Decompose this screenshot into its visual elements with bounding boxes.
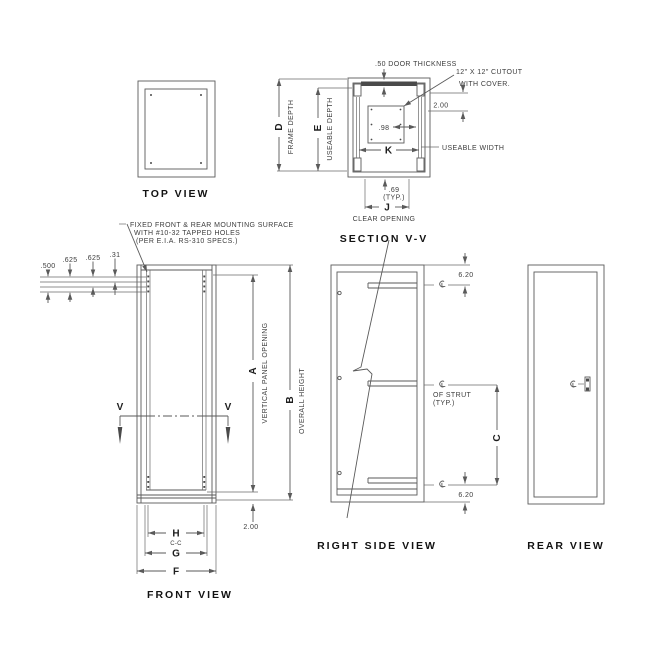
f-letter: F: [173, 567, 179, 578]
top-view: TOP VIEW: [138, 81, 215, 200]
dim-overall-height: B OVERALL HEIGHT: [216, 265, 306, 500]
top-view-title: TOP VIEW: [143, 188, 210, 200]
flange-typ-text: (TYP.): [383, 195, 405, 202]
front-body: [137, 265, 216, 503]
dim-cover-offset: 2.00: [428, 82, 468, 122]
frame-depth-label: FRAME DEPTH: [288, 100, 295, 155]
mounting-note-line3: (PER E.I.A. RS-310 SPECS.): [136, 238, 238, 245]
door-cross-section: [361, 82, 417, 87]
clear-opening-label: CLEAR OPENING: [353, 216, 416, 223]
front-view: .500 .625 .625 .31 FIXED FRONT & REAR MO…: [40, 222, 306, 601]
cutout-note-line2: WITH COVER.: [459, 81, 510, 88]
dim-useable-width: K USEABLE WIDTH: [359, 145, 504, 157]
overall-height-label: OVERALL HEIGHT: [299, 368, 306, 434]
overall-height-letter: B: [285, 396, 296, 403]
dim-base: 2.00: [243, 504, 258, 531]
hole-dim-500: .500: [40, 263, 55, 270]
cut-arrow-left: [118, 427, 123, 444]
mounting-note-line1: FIXED FRONT & REAR MOUNTING SURFACE: [130, 222, 294, 229]
cutout-gap-text: .98: [379, 125, 390, 132]
dim-strut-bottom: 6.20: [424, 472, 497, 514]
panel-opening-label: VERTICAL PANEL OPENING: [262, 323, 269, 424]
hole-dim-625a: .625: [62, 257, 77, 264]
section-vv: .50 DOOR THICKNESS 12" X 12" CUTOUT WITH…: [274, 61, 523, 245]
centerline-icon: [571, 381, 577, 387]
cover-offset-text: 2.00: [433, 103, 448, 110]
useable-depth-letter: E: [313, 124, 324, 131]
dim-c: C: [492, 385, 503, 485]
strut-top: [368, 283, 417, 288]
side-body: [331, 240, 424, 518]
dim-cutout-gap: .98: [379, 125, 416, 132]
dim-useable-depth: E USEABLE DEPTH: [313, 88, 352, 171]
front-view-title: FRONT VIEW: [147, 589, 233, 601]
section-marker-left: V: [117, 402, 124, 413]
useable-width-label: USEABLE WIDTH: [442, 145, 504, 152]
rail-holes: [147, 276, 205, 488]
hole-dim-31: .31: [110, 252, 121, 259]
strut-bottom-dim-text: 6.20: [458, 492, 473, 499]
section-marker-right: V: [225, 402, 232, 413]
h-sublabel: C-C: [170, 541, 182, 547]
dim-frame-depth: D FRAME DEPTH: [274, 79, 347, 171]
strut-top-dim-text: 6.20: [458, 272, 473, 279]
dim-strut-top: 6.20: [424, 253, 474, 297]
hole-dim-625b: .625: [85, 255, 100, 262]
enclosure-engineering-drawing: TOP VIEW .50 DOOR THICKNESS: [0, 0, 650, 650]
dim-h: H C-C: [148, 505, 204, 547]
clear-opening-letter: J: [384, 203, 390, 214]
mounting-note: FIXED FRONT & REAR MOUNTING SURFACE WITH…: [119, 222, 294, 272]
centerline-icon: [440, 281, 446, 287]
strut-bottom: [368, 478, 417, 483]
right-side-view: 6.20 OF STRUT (TYP.) C 6.20 RIGHT SIDE V…: [317, 240, 503, 552]
rear-view: REAR VIEW: [527, 265, 605, 552]
right-side-view-title: RIGHT SIDE VIEW: [317, 540, 437, 552]
break-line: [347, 240, 389, 518]
rear-body: [528, 265, 604, 504]
section-vv-title: SECTION V-V: [340, 233, 429, 245]
frame-depth-letter: D: [274, 123, 285, 130]
top-view-outline: [138, 81, 215, 177]
cutout-note-line1: 12" X 12" CUTOUT: [456, 69, 523, 76]
flange-dim-text: .69: [389, 187, 400, 194]
g-letter: G: [172, 549, 180, 560]
dim-door-thickness: .50 DOOR THICKNESS: [375, 61, 457, 97]
section-cut-line: V V: [117, 402, 232, 444]
strut-note-line1: OF STRUT: [433, 392, 472, 399]
rear-view-title: REAR VIEW: [527, 540, 605, 552]
base-dim-text: 2.00: [243, 524, 258, 531]
latch-detail: [571, 377, 590, 391]
strut-note-line2: (TYP.): [433, 400, 455, 407]
strut-centerline-note: OF STRUT (TYP.): [424, 381, 497, 407]
useable-width-letter: K: [385, 146, 393, 157]
centerline-icon: [440, 381, 446, 387]
drawing-page: TOP VIEW .50 DOOR THICKNESS: [0, 0, 650, 650]
centerline-icon: [440, 481, 446, 487]
c-letter: C: [492, 434, 503, 441]
panel-opening-letter: A: [248, 367, 259, 374]
mounting-note-line2: WITH #10-32 TAPPED HOLES: [134, 230, 240, 237]
useable-depth-label: USEABLE DEPTH: [327, 97, 334, 160]
cut-arrow-right: [226, 427, 231, 444]
strut-middle: [368, 381, 417, 386]
hole-spacing-dims: .500 .625 .625 .31: [40, 252, 146, 303]
dim-flange: .69 (TYP.): [383, 180, 405, 202]
door-thickness-text: .50 DOOR THICKNESS: [375, 61, 457, 68]
h-letter: H: [172, 529, 179, 540]
